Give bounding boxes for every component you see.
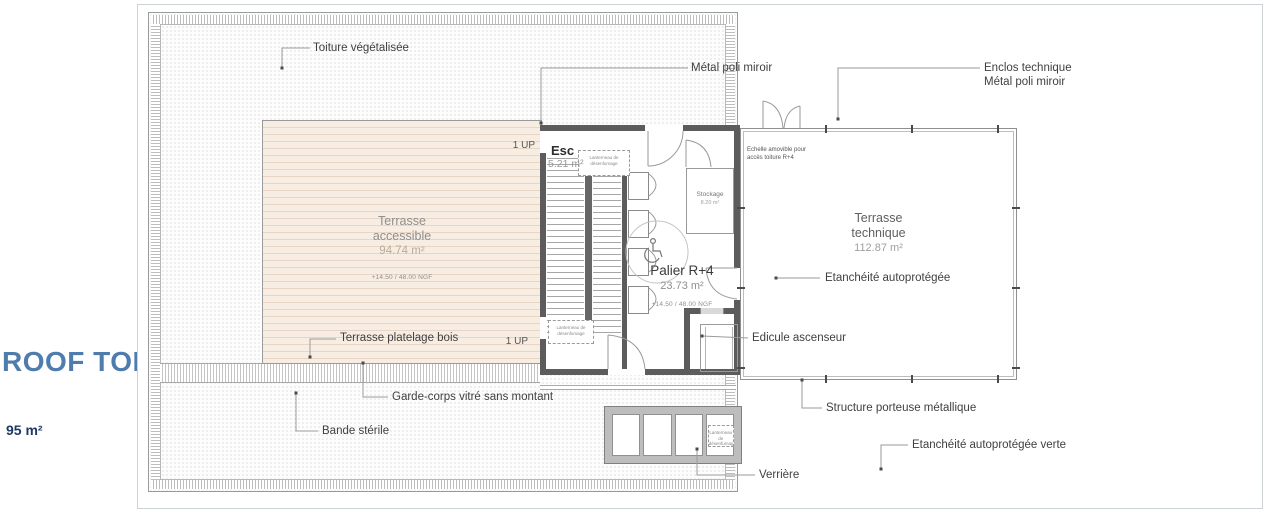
tick-marks [741, 125, 1016, 133]
page-total-area: 95 m² [6, 422, 43, 438]
label-echelle-2: accès toiture R+4 [747, 155, 794, 162]
tick-marks [737, 129, 745, 379]
room-name: Terrasse [263, 214, 541, 229]
elevator-car-guides [705, 327, 733, 369]
stockage-room: Stockage 8.20 m² [686, 168, 734, 234]
elevator-car [700, 324, 738, 372]
tick-marks [741, 375, 1016, 383]
tick-marks [1012, 129, 1020, 379]
duct-closet [628, 248, 649, 276]
label-edicule: Edicule ascenseur [752, 331, 846, 345]
label-enclos-2: Métal poli miroir [984, 75, 1065, 89]
skylight-pane [675, 414, 703, 456]
room-name: Stockage [687, 191, 733, 198]
palier-room-name: Palier R+4 [648, 263, 716, 278]
sterile-band-bottom [151, 480, 735, 489]
stair-up-label-bottom: 1 UP [496, 336, 528, 347]
page-title: ROOF TOP [2, 346, 152, 378]
wall [540, 125, 546, 131]
palier-room-area: 23.73 m² [648, 280, 716, 292]
elevator-door [700, 308, 724, 314]
stair-flight-left [547, 153, 584, 333]
wall [540, 125, 645, 131]
wall [540, 369, 608, 375]
label-etancheite-verte: Etanchéité autoprotégée verte [912, 438, 1066, 452]
label-platelage: Terrasse platelage bois [340, 331, 458, 345]
roof-edge-line [540, 385, 736, 390]
room-area: 112.87 m² [741, 242, 1016, 254]
room-name: Terrasse [741, 211, 1016, 226]
smoke-vent-label: désenfumage [549, 331, 593, 337]
smoke-vent-box: Lanterneau de désenfumage [708, 425, 734, 447]
sterile-band-top [151, 15, 735, 24]
label-structure: Structure porteuse métallique [826, 401, 976, 415]
terrasse-accessible-label: Terrasse accessible 94.74 m² +14.50 / 48… [263, 214, 541, 281]
duct-closet [628, 172, 649, 200]
label-verriere: Verrière [759, 468, 799, 482]
room-name: accessible [263, 229, 541, 244]
esc-room-name: Esc [551, 143, 574, 158]
skylight-pane [643, 414, 671, 456]
smoke-vent-label: désenfumage [709, 441, 733, 447]
smoke-vent-label: désenfumage [579, 161, 629, 167]
esc-room-area: 5.21 m² [548, 158, 584, 170]
duct-closet [628, 210, 649, 238]
label-echelle-1: Echelle amovible pour [747, 147, 806, 154]
verriere-skylight: Lanterneau de désenfumage [604, 406, 742, 464]
skylight-pane: Lanterneau de désenfumage [706, 414, 734, 456]
label-toiture: Toiture végétalisée [313, 41, 409, 55]
label-etancheite: Etanchéité autoprotégée [825, 271, 950, 285]
roof-plan-sheet: ROOF TOP 95 m² Terrasse accessible 94.74… [0, 0, 1280, 515]
stair-stringer [585, 168, 592, 332]
terrasse-technique-label: Terrasse technique 112.87 m² [741, 211, 1016, 254]
sterile-band-building [160, 363, 540, 383]
elevator-interior [690, 314, 734, 369]
room-area: 8.20 m² [687, 200, 733, 206]
stair-up-label-top: 1 UP [503, 140, 535, 151]
smoke-vent-label: Lanterneau de [709, 430, 733, 441]
room-area: 94.74 m² [263, 245, 541, 257]
wall [683, 125, 740, 131]
duct-closet [628, 286, 649, 314]
smoke-vent-box: Lanterneau de désenfumage [578, 150, 630, 176]
skylight-pane [612, 414, 640, 456]
label-garde-corps: Garde-corps vitré sans montant [392, 390, 553, 404]
label-bande-sterile: Bande stérile [322, 424, 389, 438]
label-enclos-1: Enclos technique [984, 61, 1072, 75]
smoke-vent-box: Lanterneau de désenfumage [548, 320, 594, 344]
level-mark: +14.50 / 48.00 NGF [263, 274, 541, 281]
sterile-band-left [151, 15, 160, 489]
room-name: technique [741, 226, 1016, 241]
elevator-shaft [684, 308, 740, 375]
terrasse-accessible-area: Terrasse accessible 94.74 m² +14.50 / 48… [262, 120, 542, 364]
label-metal: Métal poli miroir [691, 61, 772, 75]
stair-flight-right [593, 153, 621, 333]
palier-level-mark: +14.50 / 48.00 NGF [643, 301, 721, 308]
wall-stair-divider [622, 153, 627, 369]
wall [540, 153, 546, 317]
